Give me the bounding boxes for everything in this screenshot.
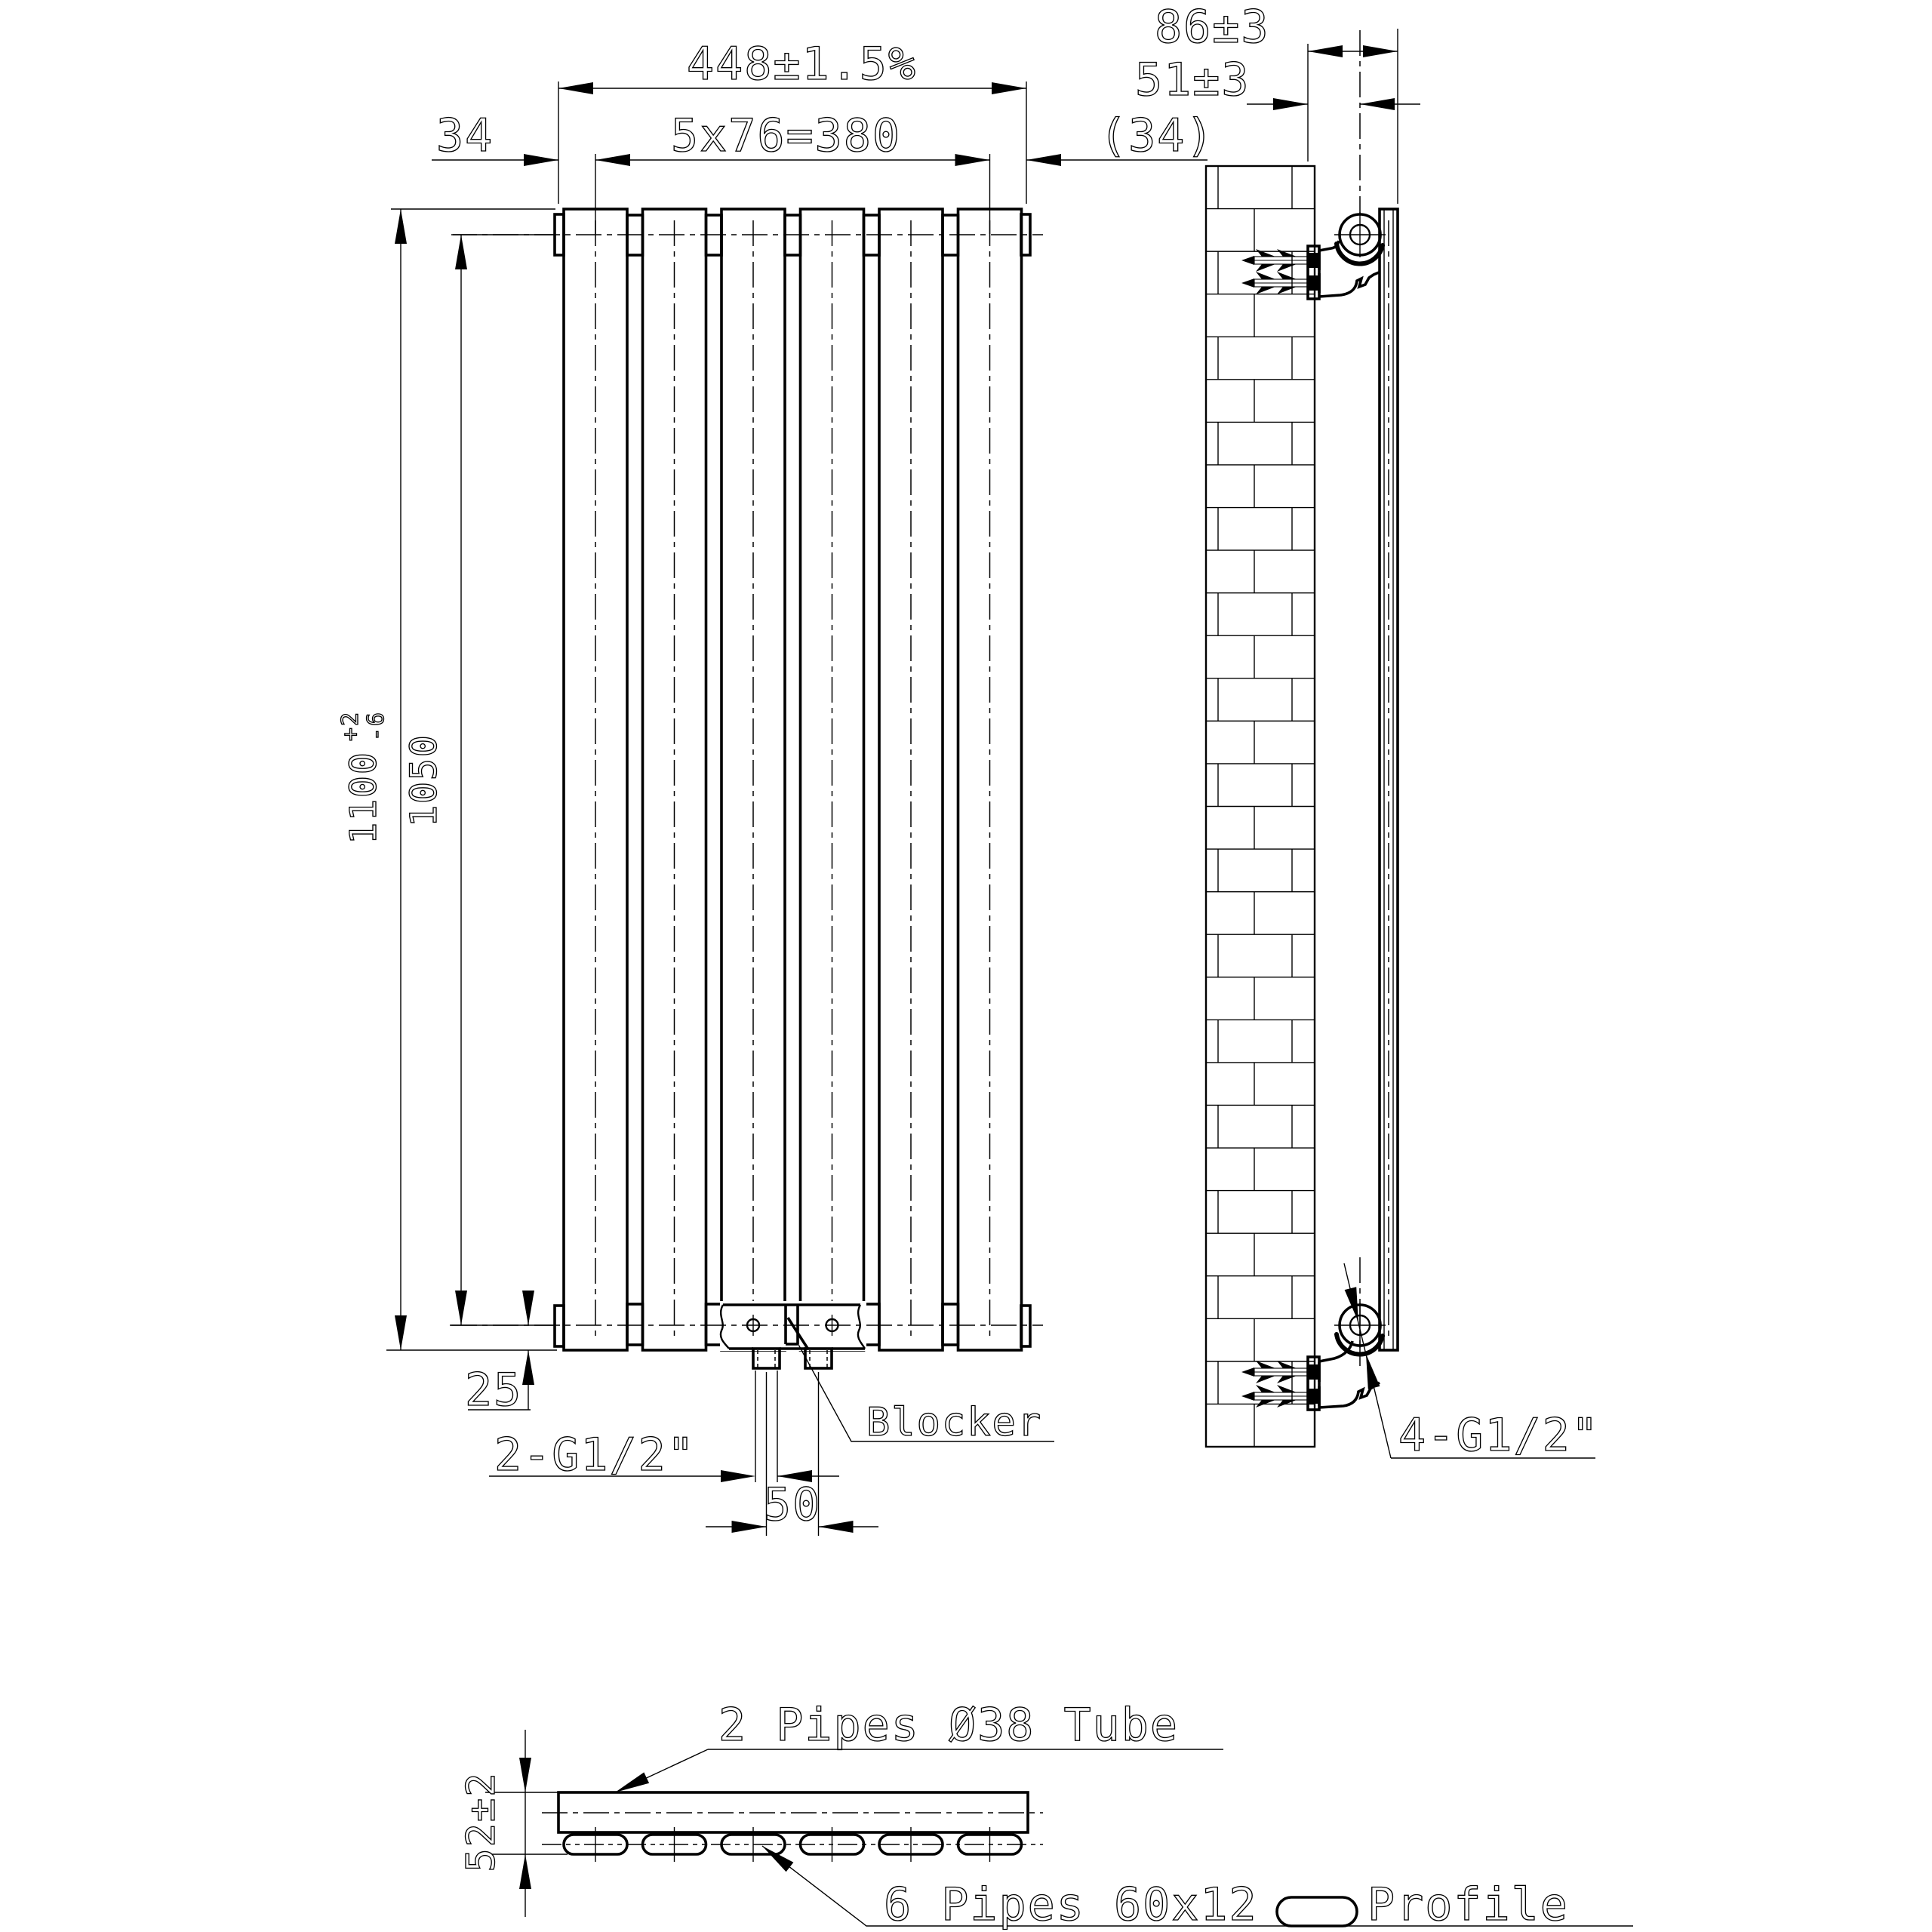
label-connections: 4-G1/2"	[1398, 1409, 1600, 1462]
dim-height-total: 1100	[343, 751, 385, 844]
wall-bracket-top	[1241, 30, 1386, 299]
screw-head	[1309, 275, 1318, 291]
label-pipes: 6 Pipes 60x12	[884, 1878, 1258, 1931]
anchor-fin	[1256, 1385, 1275, 1392]
screw-head	[1309, 253, 1318, 268]
anchor-fin	[1256, 264, 1275, 272]
label-blocker: Blocker	[866, 1400, 1042, 1445]
dim-panel-spacing: 5x76=380	[671, 109, 901, 162]
anchor-fin	[1277, 1376, 1297, 1383]
dim-bottom-offset: 25	[465, 1364, 522, 1417]
bottom-connector-block	[706, 1304, 722, 1345]
anchor-fin	[1277, 272, 1297, 279]
dim-height-tol-minus: -6	[363, 711, 389, 741]
dim-offset-right: (34)	[1100, 109, 1215, 162]
anchor-fin	[1277, 287, 1297, 294]
dim-height-centers: 1050	[403, 734, 445, 827]
bottom-connector-block	[943, 1304, 958, 1345]
anchor-fin	[1241, 278, 1254, 288]
screw-head	[1309, 1364, 1318, 1380]
anchor-fin	[1277, 249, 1297, 257]
front-dimensions-left: 1100 +2 -6 1050 25	[337, 209, 557, 1417]
pipes-callout: 6 Pipes 60x12 Profile	[762, 1846, 1633, 1931]
dim-thickness: 52±2	[459, 1771, 504, 1872]
front-dimensions-bottom: 2-G1/2" 50 Blocker	[489, 1342, 1054, 1536]
side-dimensions: 86±3 51±3 4-G1/2"	[1135, 1, 1600, 1462]
radiator-technical-drawing-page: 448±1.5% 34 5x76=380 (34) 1100 +2 -6	[0, 0, 1932, 1932]
radiator-side-profile	[1380, 209, 1398, 1350]
wall-bracket-bottom	[1241, 1257, 1386, 1410]
dim-port-spacing: 50	[764, 1478, 821, 1531]
anchor-fin	[1277, 1385, 1297, 1392]
label-profile: Profile	[1367, 1878, 1569, 1931]
anchor-fin	[1256, 249, 1275, 257]
screw-head	[1309, 1389, 1318, 1404]
anchor-fin	[1241, 1367, 1254, 1377]
anchor-fin	[1256, 1376, 1275, 1383]
anchor-fin	[1277, 264, 1297, 272]
brick-pattern	[1206, 166, 1315, 1447]
dim-offset-left: 34	[436, 109, 494, 162]
panel-group	[555, 209, 1030, 1350]
section-view: 52±2 2 Pipes Ø38 Tube 6 Pipes 60x12 Prof…	[459, 1699, 1633, 1931]
anchor-fin	[1241, 256, 1254, 265]
dim-height-tol-plus: +2	[337, 711, 364, 741]
label-bottom-ports: 2-G1/2"	[494, 1429, 696, 1481]
anchor-fin	[1241, 1392, 1254, 1401]
dim-wall-to-center: 51±3	[1135, 54, 1251, 106]
front-dimensions-top: 448±1.5% 34 5x76=380 (34)	[432, 38, 1215, 234]
anchor-fin	[1256, 272, 1275, 279]
bottom-connection-detail	[720, 1301, 866, 1368]
drawing-canvas: 448±1.5% 34 5x76=380 (34) 1100 +2 -6	[0, 0, 1932, 1932]
section-dimension: 52±2	[459, 1730, 568, 1917]
label-tube: 2 Pipes Ø38 Tube	[718, 1699, 1179, 1752]
oval-profile-icon	[1277, 1897, 1357, 1926]
bottom-connector-block	[627, 1304, 643, 1345]
front-view: 448±1.5% 34 5x76=380 (34) 1100 +2 -6	[337, 38, 1215, 1536]
dim-depth-total: 86±3	[1155, 1, 1270, 54]
side-view: 86±3 51±3 4-G1/2"	[1135, 1, 1600, 1462]
anchor-fin	[1256, 287, 1275, 294]
tube-callout: 2 Pipes Ø38 Tube	[615, 1699, 1223, 1792]
dim-width-total: 448±1.5%	[687, 38, 917, 91]
